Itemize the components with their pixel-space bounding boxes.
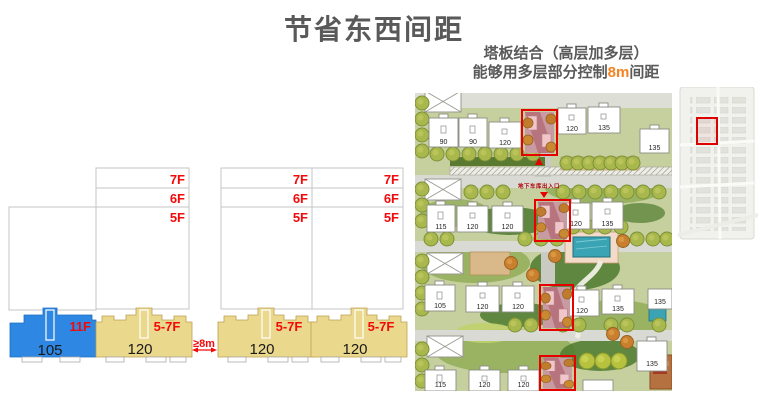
svg-text:5-7F: 5-7F — [154, 319, 181, 334]
svg-text:135: 135 — [654, 299, 666, 306]
siteplan-building: 120 — [502, 282, 534, 312]
svg-text:120: 120 — [342, 341, 367, 358]
svg-text:地下车库出入口: 地下车库出入口 — [518, 182, 560, 190]
spacing-diagram: 7F 6F 5F 7F 6F 5F 7F 6F 5F 11F 105 5-7F … — [0, 158, 420, 375]
svg-text:135: 135 — [612, 306, 624, 313]
siteplan-building: 90 — [459, 114, 487, 147]
svg-text:120: 120 — [477, 304, 489, 311]
svg-text:120: 120 — [502, 224, 514, 231]
svg-text:7F: 7F — [293, 172, 308, 187]
svg-text:7F: 7F — [170, 172, 185, 187]
siteplan-building: 135 — [592, 198, 623, 229]
svg-text:135: 135 — [598, 125, 610, 132]
siteplan-building: 135 — [640, 125, 669, 153]
svg-text:135: 135 — [602, 221, 614, 228]
siteplan-building: 120 — [492, 202, 523, 232]
siteplan-building: 135 — [588, 103, 620, 133]
slide-background: { "slide": { "title": "节省东西间距", "subtitl… — [0, 0, 760, 401]
siteplan-building: 105 — [425, 281, 455, 311]
svg-text:6F: 6F — [170, 191, 185, 206]
svg-text:115: 115 — [435, 224, 446, 231]
siteplan-building: 135 — [637, 337, 667, 371]
svg-text:120: 120 — [479, 382, 491, 389]
subtitle-line1: 塔板结合（高层加多层） — [420, 44, 712, 63]
gap-dimension: ≥8m — [192, 338, 217, 353]
siteplan-building: 120 — [558, 104, 586, 134]
page-title: 节省东西间距 — [0, 8, 748, 48]
svg-text:120: 120 — [467, 224, 479, 231]
svg-text:5F: 5F — [170, 210, 185, 225]
svg-text:120: 120 — [499, 140, 511, 147]
elevation-outlines — [9, 168, 403, 310]
svg-text:90: 90 — [469, 139, 477, 146]
siteplan-building: 120 — [457, 202, 488, 232]
svg-text:135: 135 — [649, 145, 661, 152]
siteplan-building: 120 — [469, 366, 500, 391]
svg-text:7F: 7F — [384, 172, 399, 187]
distance-highlight: 8m — [608, 64, 630, 81]
svg-text:120: 120 — [570, 221, 582, 228]
key-map — [678, 87, 758, 250]
siteplan-building: 90 — [429, 114, 458, 147]
svg-text:5-7F: 5-7F — [276, 319, 303, 334]
svg-text:90: 90 — [440, 139, 448, 146]
key-map-highlight — [697, 118, 717, 144]
site-plan-image: 90 90 120 120 135 135 115 120 120 120 13… — [415, 93, 672, 396]
svg-text:135: 135 — [646, 361, 658, 368]
svg-text:5-7F: 5-7F — [368, 319, 395, 334]
siteplan-building: 120 — [466, 282, 499, 312]
svg-text:115: 115 — [435, 382, 446, 389]
siteplan-building: 120 — [489, 118, 521, 148]
svg-text:5F: 5F — [384, 210, 399, 225]
svg-text:105: 105 — [37, 342, 62, 359]
subtitle: 塔板结合（高层加多层） 能够用多层部分控制8m间距 — [420, 44, 712, 82]
svg-text:120: 120 — [518, 382, 530, 389]
svg-text:120: 120 — [249, 341, 274, 358]
subtitle-line2: 能够用多层部分控制8m间距 — [420, 63, 712, 82]
siteplan-building: 115 — [427, 201, 455, 232]
svg-text:120: 120 — [576, 308, 588, 315]
svg-text:120: 120 — [512, 304, 524, 311]
svg-text:11F: 11F — [69, 319, 91, 334]
svg-text:105: 105 — [434, 303, 446, 310]
svg-text:6F: 6F — [293, 191, 308, 206]
siteplan-building: 135 — [602, 285, 634, 314]
svg-text:120: 120 — [566, 126, 578, 133]
svg-text:120: 120 — [127, 341, 152, 358]
siteplan-building: 120 — [508, 366, 539, 391]
siteplan-building: 115 — [425, 366, 456, 391]
svg-text:5F: 5F — [293, 210, 308, 225]
svg-text:6F: 6F — [384, 191, 399, 206]
siteplan-building: 135 — [648, 289, 672, 309]
